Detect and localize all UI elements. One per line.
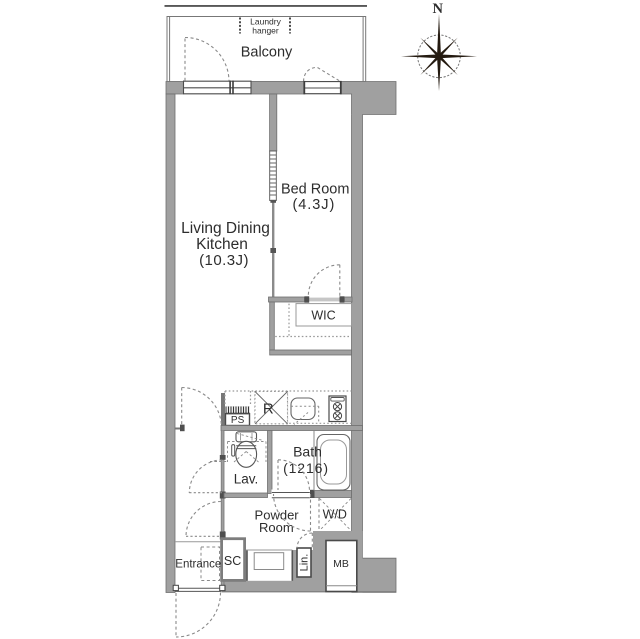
svg-text:Bath: Bath [293, 444, 322, 460]
svg-text:MB: MB [333, 558, 349, 570]
svg-text:Kitchen: Kitchen [196, 236, 248, 253]
svg-text:N: N [433, 1, 444, 17]
svg-text:Lav.: Lav. [234, 472, 259, 487]
svg-text:hanger: hanger [252, 26, 279, 36]
svg-text:SC: SC [224, 554, 241, 568]
svg-text:R: R [263, 401, 274, 418]
svg-text:(4.3J): (4.3J) [293, 197, 336, 213]
svg-text:W/D: W/D [323, 508, 347, 522]
svg-text:Balcony: Balcony [241, 45, 293, 61]
svg-text:Room: Room [259, 520, 294, 535]
svg-text:Living Dining: Living Dining [181, 220, 270, 237]
svg-text:WIC: WIC [311, 309, 335, 323]
svg-text:Entrance: Entrance [175, 558, 221, 570]
svg-text:PS: PS [231, 415, 245, 426]
svg-text:Bed Room: Bed Room [281, 182, 350, 198]
svg-text:(10.3J): (10.3J) [199, 252, 249, 269]
svg-text:Lin.: Lin. [299, 554, 311, 572]
